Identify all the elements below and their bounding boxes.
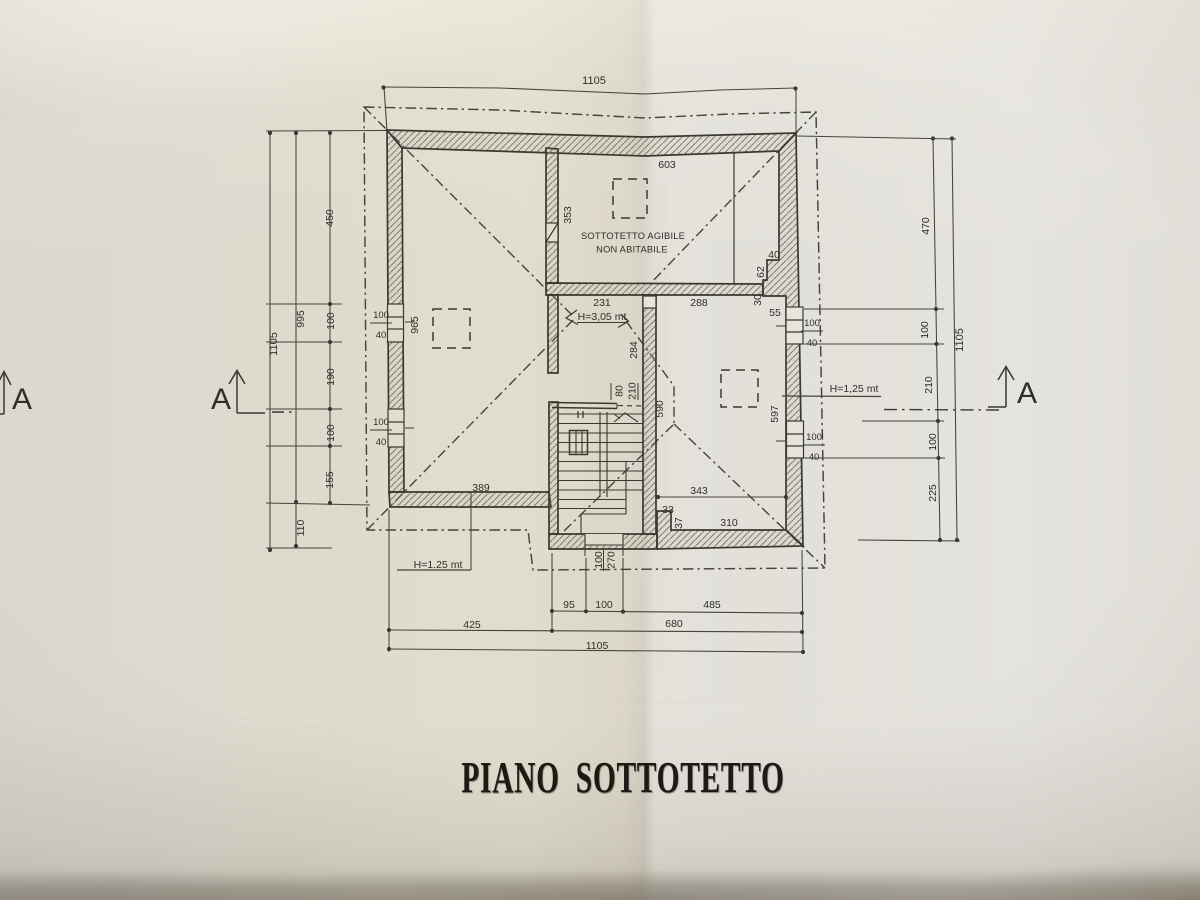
svg-text:H=3,05 mt: H=3,05 mt: [578, 311, 627, 323]
svg-text:288: 288: [690, 297, 708, 309]
svg-text:590: 590: [654, 400, 666, 418]
svg-text:40: 40: [376, 330, 387, 341]
svg-text:425: 425: [463, 619, 481, 631]
svg-text:310: 310: [720, 517, 738, 529]
svg-text:100: 100: [325, 424, 337, 442]
svg-text:SOTTOTETTO AGIBILE: SOTTOTETTO AGIBILE: [581, 231, 685, 241]
svg-text:40: 40: [807, 338, 818, 349]
svg-text:225: 225: [927, 484, 939, 502]
svg-text:100: 100: [804, 318, 820, 329]
svg-text:A: A: [211, 383, 231, 416]
svg-text:100: 100: [919, 321, 931, 339]
svg-text:450: 450: [324, 209, 336, 227]
svg-text:210: 210: [923, 376, 935, 394]
svg-text:37: 37: [673, 517, 685, 529]
svg-text:H=1.25 mt: H=1.25 mt: [414, 559, 463, 571]
svg-text:190: 190: [325, 368, 337, 386]
svg-text:680: 680: [665, 618, 683, 630]
svg-text:NON ABITABILE: NON ABITABILE: [596, 245, 668, 255]
svg-text:965: 965: [409, 316, 421, 334]
svg-text:485: 485: [703, 599, 721, 611]
svg-text:A: A: [12, 383, 32, 416]
svg-text:100: 100: [927, 433, 939, 451]
svg-text:1105: 1105: [268, 332, 280, 356]
svg-text:62: 62: [755, 266, 767, 278]
svg-text:470: 470: [920, 217, 932, 235]
svg-text:100: 100: [325, 312, 337, 330]
svg-text:597: 597: [769, 405, 781, 423]
svg-text:100: 100: [373, 310, 389, 321]
svg-text:343: 343: [690, 485, 708, 497]
svg-text:210: 210: [627, 382, 639, 400]
svg-text:33: 33: [662, 504, 674, 516]
svg-text:H=1,25 mt: H=1,25 mt: [830, 383, 879, 395]
svg-text:100: 100: [806, 432, 822, 443]
svg-text:80: 80: [614, 385, 626, 397]
svg-text:40: 40: [768, 249, 780, 261]
svg-text:A: A: [1017, 377, 1037, 410]
svg-text:353: 353: [562, 206, 574, 224]
svg-text:110: 110: [295, 519, 307, 536]
svg-text:30: 30: [752, 294, 764, 306]
svg-text:40: 40: [809, 452, 820, 463]
svg-text:284: 284: [628, 341, 640, 359]
svg-text:603: 603: [658, 159, 676, 171]
svg-text:155: 155: [324, 471, 336, 489]
svg-text:231: 231: [593, 297, 611, 309]
svg-text:40: 40: [376, 437, 387, 448]
svg-text:1105: 1105: [582, 75, 606, 87]
svg-text:95: 95: [563, 599, 575, 611]
svg-text:270: 270: [606, 551, 618, 569]
svg-text:100: 100: [595, 599, 613, 611]
svg-text:100: 100: [373, 417, 389, 428]
svg-text:1105: 1105: [586, 640, 609, 652]
svg-text:389: 389: [472, 482, 490, 494]
svg-text:55: 55: [769, 307, 781, 319]
svg-text:995: 995: [295, 310, 307, 328]
svg-text:1105: 1105: [954, 328, 966, 352]
